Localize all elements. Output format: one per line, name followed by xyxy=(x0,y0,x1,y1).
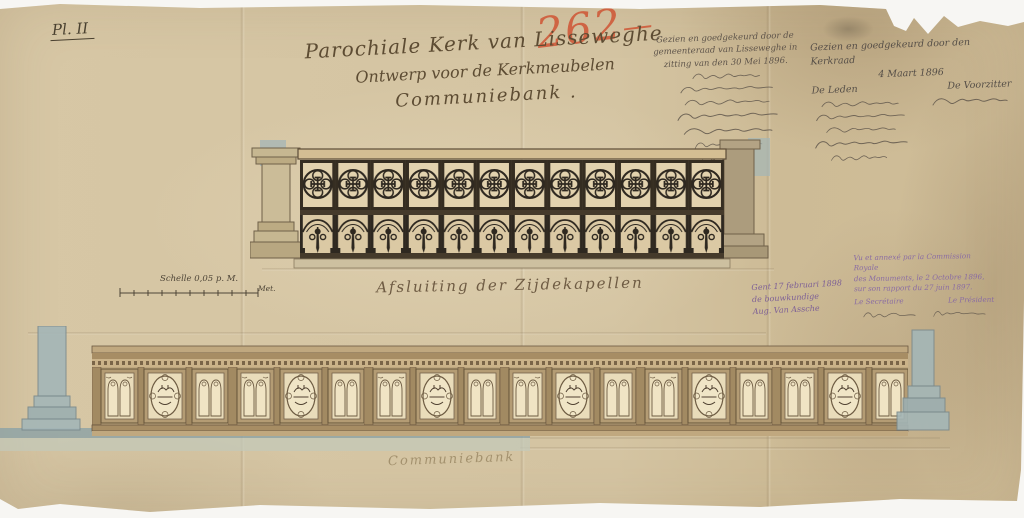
upper-screen-elevation xyxy=(250,134,774,270)
screen-railing xyxy=(294,149,730,268)
cornice-mid xyxy=(92,353,908,359)
signature xyxy=(862,309,916,321)
council-approval-heading: Gezien en goedgekeurd door de gemeentera… xyxy=(640,29,811,72)
scale-bar xyxy=(118,286,264,298)
signature xyxy=(813,135,909,152)
upper-caption: Afsluiting der Zijdekapellen xyxy=(360,273,660,296)
secretary-label: Le Secrétaire xyxy=(854,296,904,307)
title-block: Parochiale Kerk van Lisseweghe Ontwerp v… xyxy=(298,20,672,116)
scanned-drawing-page: Pl. II 262— Parochiale Kerk van Lisseweg… xyxy=(0,0,1024,518)
base-rail xyxy=(92,425,908,431)
panel-row xyxy=(92,367,908,425)
signature xyxy=(930,93,1008,110)
signature xyxy=(829,151,893,165)
commission-stamp: Vu et annexé par la Commission Royale de… xyxy=(853,251,994,323)
bench-front xyxy=(92,346,908,436)
president-label: Le Président xyxy=(948,295,994,306)
left-pier xyxy=(22,326,80,430)
bottom-rail xyxy=(300,253,724,259)
plate-number: Pl. II xyxy=(50,19,95,41)
signature xyxy=(691,69,761,83)
stone-plinth xyxy=(294,259,730,268)
arched-band xyxy=(300,215,724,253)
kerkraad-approval-block: Gezien en goedgekeurd door den Kerkraad … xyxy=(810,35,1014,167)
cornice-top xyxy=(92,346,908,353)
lower-caption: Communiebank xyxy=(388,450,516,469)
lower-bench-elevation xyxy=(0,326,980,466)
middle-rail xyxy=(300,210,724,215)
ink-smudge xyxy=(822,16,874,42)
paper-sheet: Pl. II 262— Parochiale Kerk van Lisseweg… xyxy=(0,0,1024,518)
scale-unit-label: Met. xyxy=(258,284,276,293)
stamp-line1: Vu et annexé par la Commission Royale xyxy=(853,251,993,274)
signature xyxy=(824,123,896,138)
scale-label: Schelle 0,05 p. M. xyxy=(160,274,238,284)
base-molding xyxy=(92,431,908,436)
left-pier xyxy=(250,148,302,258)
top-rail xyxy=(298,149,726,159)
quatrefoil-band xyxy=(300,160,724,210)
signature xyxy=(932,308,986,320)
stamp-line3: sur son rapport du 27 juin 1897. xyxy=(854,282,994,295)
